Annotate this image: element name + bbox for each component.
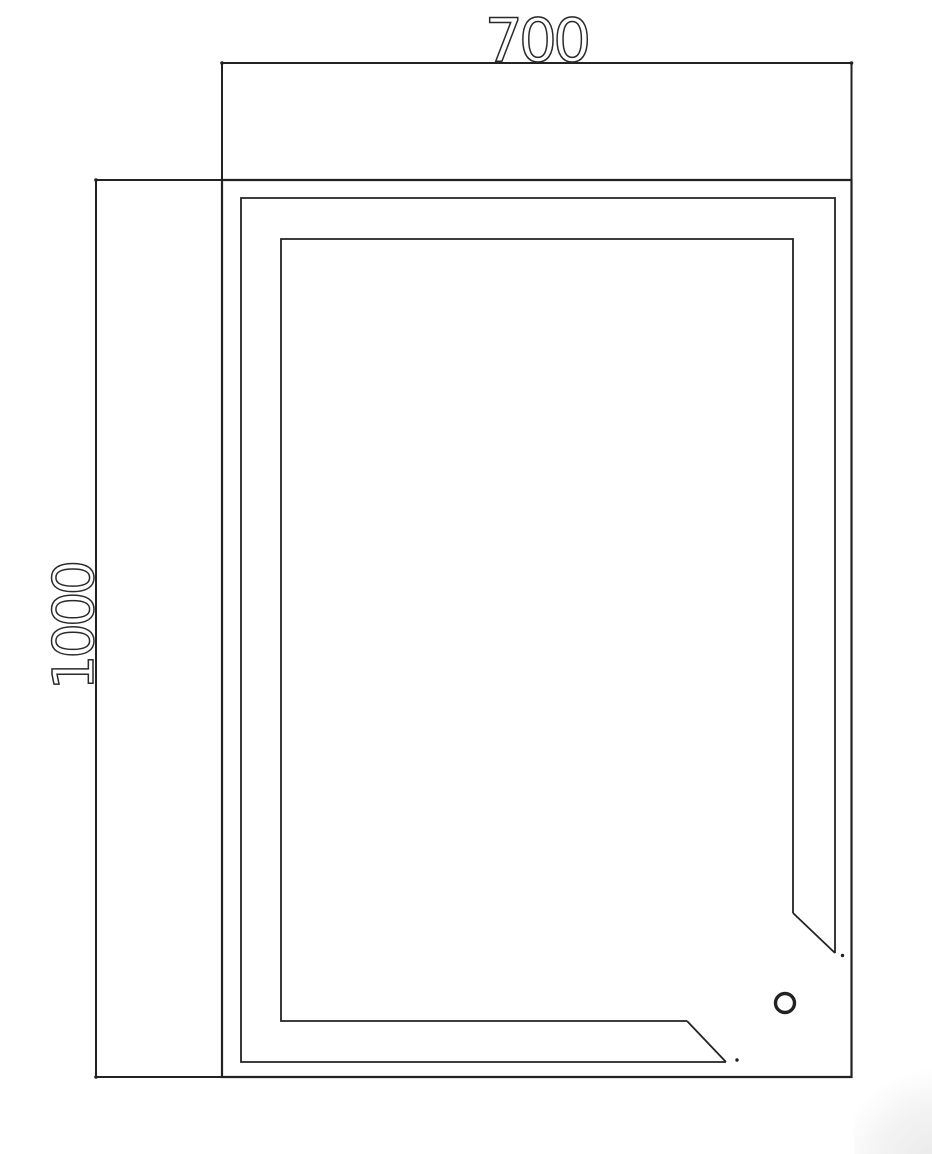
tray-rim-inner-edge: [241, 198, 835, 1062]
cad-drawing-canvas: 700 1000: [0, 0, 932, 1154]
dimension-tick-left-top: [94, 178, 98, 182]
point-mark-right: [841, 954, 844, 957]
dimension-tick-top-left: [220, 61, 224, 65]
top-dimension-line: [222, 63, 852, 180]
shower-tray-drawing: 700 1000: [0, 0, 932, 1154]
left-dimension-line: [96, 180, 222, 1077]
dimension-tick-left-bottom: [94, 1075, 98, 1079]
drain-hole: [776, 994, 795, 1013]
dimension-tick-top-right: [850, 61, 854, 65]
point-mark-bottom: [735, 1058, 738, 1061]
slope-break-line-bottom: [687, 1021, 726, 1062]
slope-break-line-right: [793, 913, 835, 953]
tray-outer-outline: [222, 180, 852, 1077]
width-dimension-label: 700: [485, 6, 588, 76]
height-dimension-label: 1000: [42, 563, 107, 690]
tray-floor-outline: [281, 239, 793, 1021]
